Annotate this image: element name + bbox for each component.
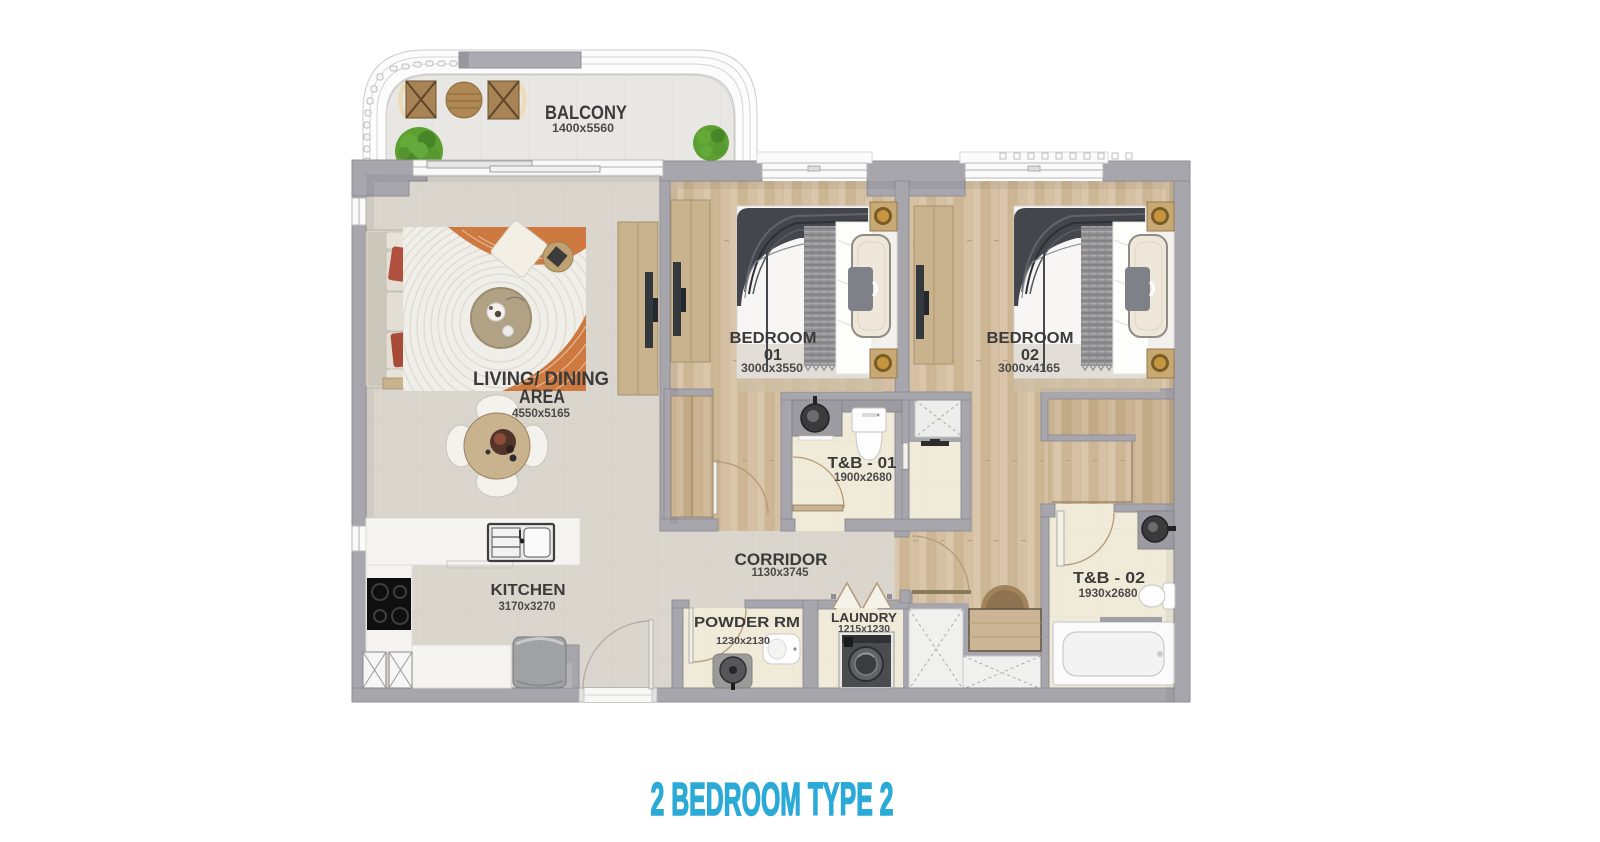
svg-text:01: 01 bbox=[764, 347, 782, 364]
svg-text:BALCONY: BALCONY bbox=[545, 103, 627, 124]
svg-text:1215x1230: 1215x1230 bbox=[838, 623, 890, 635]
svg-text:02: 02 bbox=[1021, 347, 1039, 364]
svg-text:3000x3550: 3000x3550 bbox=[741, 363, 803, 375]
svg-text:T&B - 02: T&B - 02 bbox=[1073, 570, 1145, 587]
svg-text:1900x2680: 1900x2680 bbox=[834, 472, 892, 484]
svg-text:3000x4165: 3000x4165 bbox=[998, 363, 1061, 375]
svg-text:1930x2680: 1930x2680 bbox=[1079, 588, 1138, 600]
svg-text:3170x3270: 3170x3270 bbox=[499, 601, 556, 613]
svg-text:2 BEDROOM TYPE 2: 2 BEDROOM TYPE 2 bbox=[651, 773, 894, 825]
svg-text:KITCHEN: KITCHEN bbox=[491, 582, 566, 599]
svg-text:1230x2130: 1230x2130 bbox=[716, 635, 770, 647]
svg-text:POWDER RM: POWDER RM bbox=[694, 615, 800, 631]
svg-text:1130x3745: 1130x3745 bbox=[752, 567, 810, 579]
svg-text:T&B - 01: T&B - 01 bbox=[828, 455, 897, 472]
svg-text:BEDROOM: BEDROOM bbox=[987, 330, 1074, 347]
svg-text:BEDROOM: BEDROOM bbox=[730, 330, 817, 347]
svg-text:AREA: AREA bbox=[519, 387, 565, 408]
svg-text:4550x5165: 4550x5165 bbox=[512, 408, 571, 420]
svg-text:1400x5560: 1400x5560 bbox=[552, 123, 614, 135]
